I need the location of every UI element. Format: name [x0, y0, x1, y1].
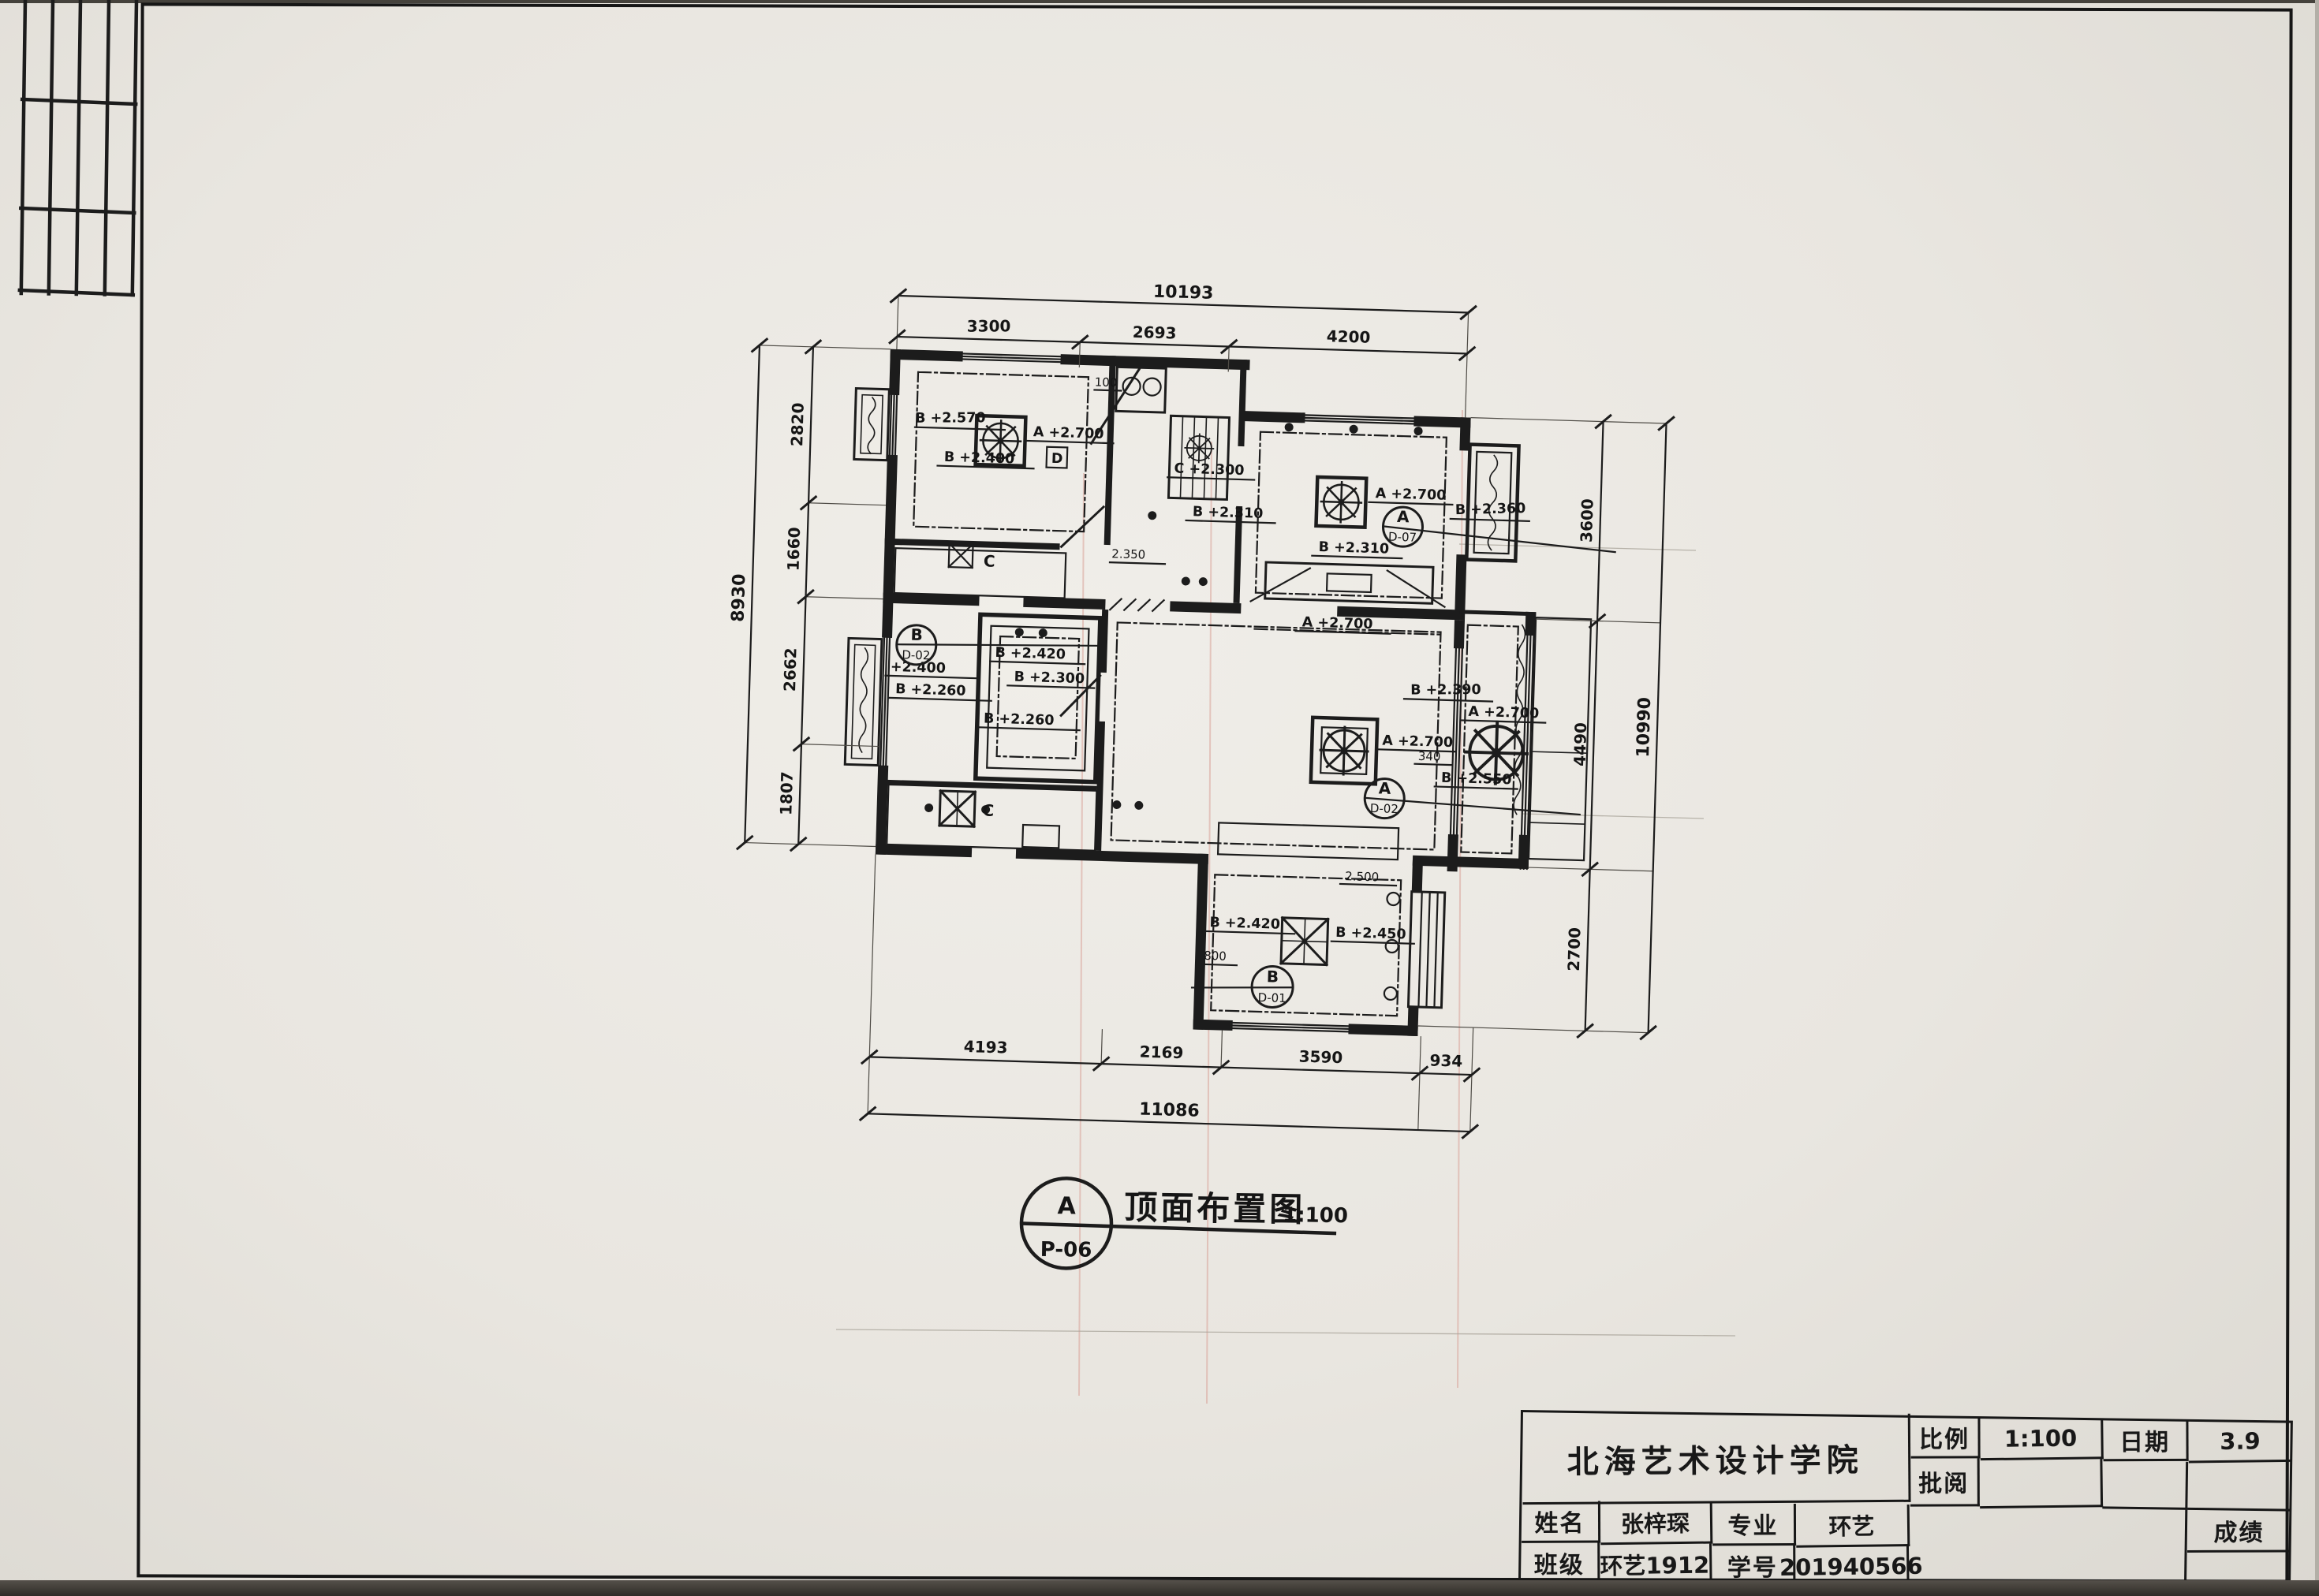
- ceiling-fan-lamp-bedroom2-icon: [1316, 477, 1366, 528]
- zone-label-c: C: [982, 800, 994, 819]
- dim-top-seg-3: 4200: [1326, 326, 1370, 347]
- detail-ref-sheet: D-01: [1257, 990, 1286, 1005]
- detail-ref-letter: B: [1267, 967, 1279, 986]
- level-label: B +2.260: [984, 710, 1055, 729]
- level-label: 100: [1094, 375, 1117, 390]
- dim-bottom-seg-4: 934: [1429, 1050, 1462, 1070]
- review-value: [1979, 1459, 2103, 1508]
- detail-ref-letter: A: [1397, 507, 1410, 526]
- level-label: B +2.360: [1455, 501, 1526, 518]
- small-hatch-square-icon: [949, 543, 973, 568]
- level-label: B +2.300: [1014, 669, 1085, 688]
- dim-bottom-overall: 11086: [1139, 1100, 1200, 1121]
- level-label: B +2.420: [1209, 915, 1280, 933]
- dim-bottom-seg-2: 2169: [1139, 1042, 1183, 1063]
- grade-label: 成绩: [2187, 1510, 2291, 1552]
- level-label: A +2.700: [1468, 704, 1539, 722]
- detail-ref-sheet: D-07: [1388, 530, 1417, 545]
- date-label: 日期: [2103, 1421, 2188, 1461]
- drawing-ref-number: P-06: [1040, 1238, 1092, 1262]
- major-label: 专业: [1712, 1504, 1796, 1546]
- margin-grid-strip: [20, 0, 137, 295]
- dim-right-overall: 10990: [1634, 697, 1655, 758]
- level-label: 340: [1418, 749, 1441, 764]
- date-value: 3.9: [2188, 1422, 2292, 1464]
- zone-label-c: C: [984, 551, 995, 570]
- laundry-table: [1022, 825, 1059, 848]
- scale-label: 比例: [1910, 1418, 1980, 1458]
- paper-guides: [836, 410, 1735, 1404]
- class-label: 班级: [1521, 1543, 1600, 1582]
- level-label: B +2.260: [895, 681, 966, 699]
- level-label: C +2.300: [1174, 461, 1245, 479]
- dim-left-seg-4: 1807: [776, 771, 797, 815]
- dim-right-seg-1: 3600: [1577, 498, 1597, 543]
- level-label: B +2.310: [1318, 539, 1389, 557]
- small-fan-entry-icon: [1185, 434, 1214, 463]
- threshold-hatch: [1110, 598, 1163, 611]
- zone-label-d: D: [1051, 451, 1063, 467]
- dim-left-seg-2: 1660: [783, 527, 804, 571]
- detail-ref-bedroom3: B D-01: [1191, 964, 1293, 1008]
- scanned-sheet: { "colors": {"paper":"#eae7e1","ink":"#1…: [0, 0, 2319, 1596]
- review-label: 批阅: [1910, 1458, 1980, 1506]
- downlight-circles: [1384, 893, 1400, 1000]
- exhaust-fan-kitchen-icon: [939, 791, 975, 826]
- photo-edge-bottom: [0, 1580, 2319, 1596]
- dim-left-overall: 8930: [729, 573, 750, 622]
- exhaust-fan-bedroom3-icon: [1281, 918, 1328, 965]
- level-label: A +2.700: [1033, 424, 1104, 442]
- name-value: 张梓琛: [1600, 1502, 1713, 1546]
- class-value: 环艺1912: [1600, 1544, 1712, 1584]
- detail-ref-letter: B: [910, 625, 923, 644]
- title-block: 北海艺术设计学院 比例 1:100 日期 3.9 批阅 姓名 张梓琛 专业 环艺…: [1518, 1410, 2293, 1593]
- level-label: A +2.700: [1375, 486, 1446, 504]
- level-label: B +2.400: [944, 449, 1015, 468]
- empty-cell: [2187, 1462, 2291, 1512]
- dim-bottom-seg-3: 3590: [1298, 1047, 1342, 1068]
- dim-bottom-seg-1: 4193: [964, 1037, 1008, 1057]
- empty-cell: [1909, 1506, 2187, 1590]
- entry-cabinet: [1116, 367, 1167, 412]
- level-label: 2.350: [1111, 546, 1145, 561]
- dim-top-overall: 10193: [1153, 282, 1214, 304]
- level-label: B +2.390: [1410, 682, 1481, 698]
- drawing-title-text: 顶面布置图: [1124, 1188, 1306, 1229]
- level-label: B +2.570: [915, 410, 986, 426]
- level-label: B +2.550: [1441, 770, 1512, 789]
- dim-right-seg-3: 2700: [1564, 927, 1585, 971]
- level-label: A +2.700: [1302, 614, 1373, 632]
- dim-top-seg-1: 3300: [967, 316, 1011, 335]
- drawing-title: A P-06 顶面布置图 1:100: [1021, 1178, 1348, 1273]
- level-label: 2.500: [1345, 869, 1379, 884]
- detail-ref-letter: A: [1379, 778, 1392, 797]
- level-label: B +2.310: [1193, 504, 1264, 522]
- major-value: 环艺: [1796, 1505, 1910, 1548]
- level-label: A +2.700: [1382, 733, 1453, 751]
- level-label: B +2.420: [995, 645, 1066, 663]
- dim-left-seg-3: 2662: [780, 647, 801, 692]
- detail-ref-sheet: D-02: [902, 647, 931, 662]
- ceiling-fan-lamp-living-icon: [1311, 718, 1377, 784]
- scale-value: 1:100: [1980, 1419, 2104, 1460]
- dim-left-seg-1: 2820: [787, 402, 808, 446]
- name-label: 姓名: [1522, 1501, 1600, 1543]
- level-label: B +2.450: [1335, 925, 1406, 943]
- empty-cell: [2102, 1460, 2188, 1510]
- plan-drawing: 10193 3300 2693 4200 8930 2820 1660 2662…: [0, 0, 2319, 1596]
- school-name: 北海艺术设计学院: [1522, 1414, 1911, 1505]
- dim-right-seg-2: 4490: [1570, 722, 1591, 766]
- dimension-texts: 10193 3300 2693 4200 8930 2820 1660 2662…: [714, 270, 1667, 1134]
- dim-top-seg-2: 2693: [1132, 323, 1176, 343]
- level-label: 800: [1204, 949, 1227, 964]
- drawing-ref-letter: A: [1057, 1192, 1076, 1220]
- wardrobe: [1251, 561, 1446, 606]
- drawing-scale-text: 1:100: [1283, 1203, 1348, 1228]
- detail-ref-sheet: D-02: [1370, 801, 1399, 816]
